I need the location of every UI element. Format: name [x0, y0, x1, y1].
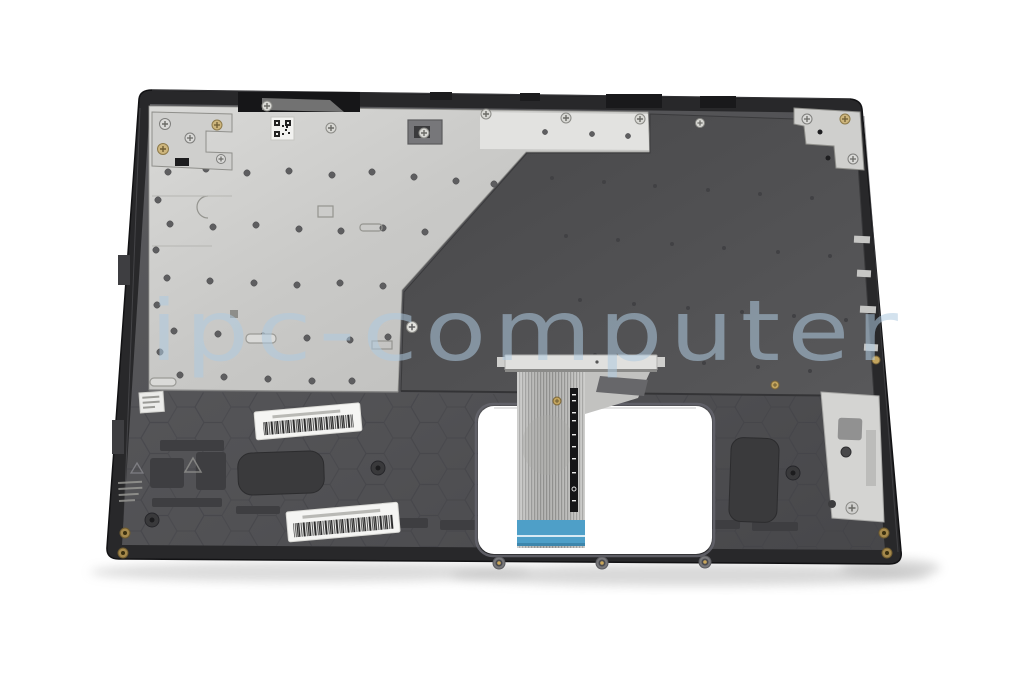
qr-sticker: [271, 117, 294, 140]
watermark-text: ipc-computer: [150, 282, 905, 380]
product-photo: ipc-computer: [0, 0, 1024, 680]
foam-pad-left: [237, 451, 324, 496]
photo-svg: ipc-computer: [0, 0, 1024, 680]
foam-pad-right: [729, 437, 780, 523]
ribbon-marking-strip: [570, 388, 578, 512]
mini-label: [139, 391, 164, 413]
right-metal-bracket: [821, 392, 884, 522]
touchpad-aperture: [476, 404, 714, 556]
ribbon-blue-tip: [517, 520, 585, 546]
